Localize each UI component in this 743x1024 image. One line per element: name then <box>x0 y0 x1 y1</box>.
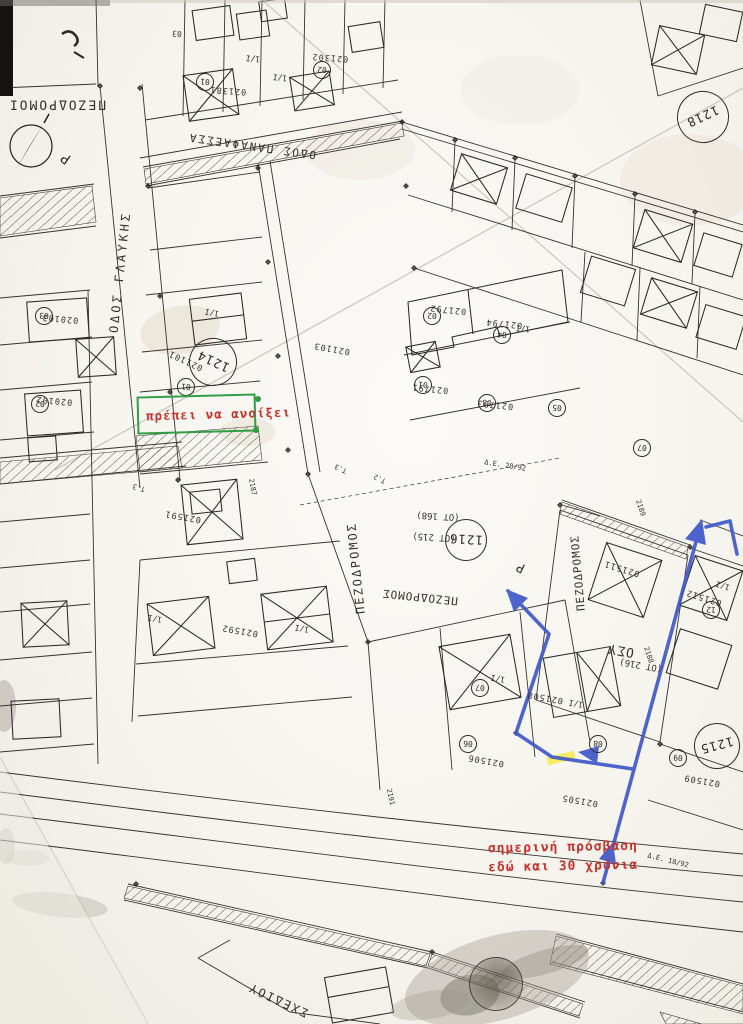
ink-smudges <box>0 760 600 1024</box>
staple-mark-icon <box>62 31 78 46</box>
access-note-line1: σημερινή πρόσβαση <box>488 838 638 859</box>
green-highlight-box: πρέπει να ανοίξει <box>137 393 257 434</box>
access-note: σημερινή πρόσβαση εδώ και 30 χρόνια <box>488 838 639 878</box>
green-node-dot <box>253 427 259 433</box>
green-node-dot <box>255 396 261 402</box>
blue-arrow-top-bend <box>706 521 737 554</box>
blue-arrowhead-top <box>685 519 706 545</box>
cadastral-map-scan: ΠΕΖΟΔΡΟΜΟΙΡΟΔΟΣ ΓΛΑΥΚΗΣΟΔΟΣ ΠΑΝΑΦΑΕΣΣΑΠΕ… <box>0 0 743 1024</box>
north-arrow-icon <box>10 114 52 171</box>
blue-arrow-long-line <box>603 527 700 883</box>
access-note-line2: εδώ και 30 χρόνια <box>488 857 638 878</box>
scan-edge-artifacts <box>0 0 743 96</box>
paper-stains <box>0 55 743 922</box>
staple-mark-icon <box>74 52 84 58</box>
hatched-strips <box>0 123 743 1024</box>
